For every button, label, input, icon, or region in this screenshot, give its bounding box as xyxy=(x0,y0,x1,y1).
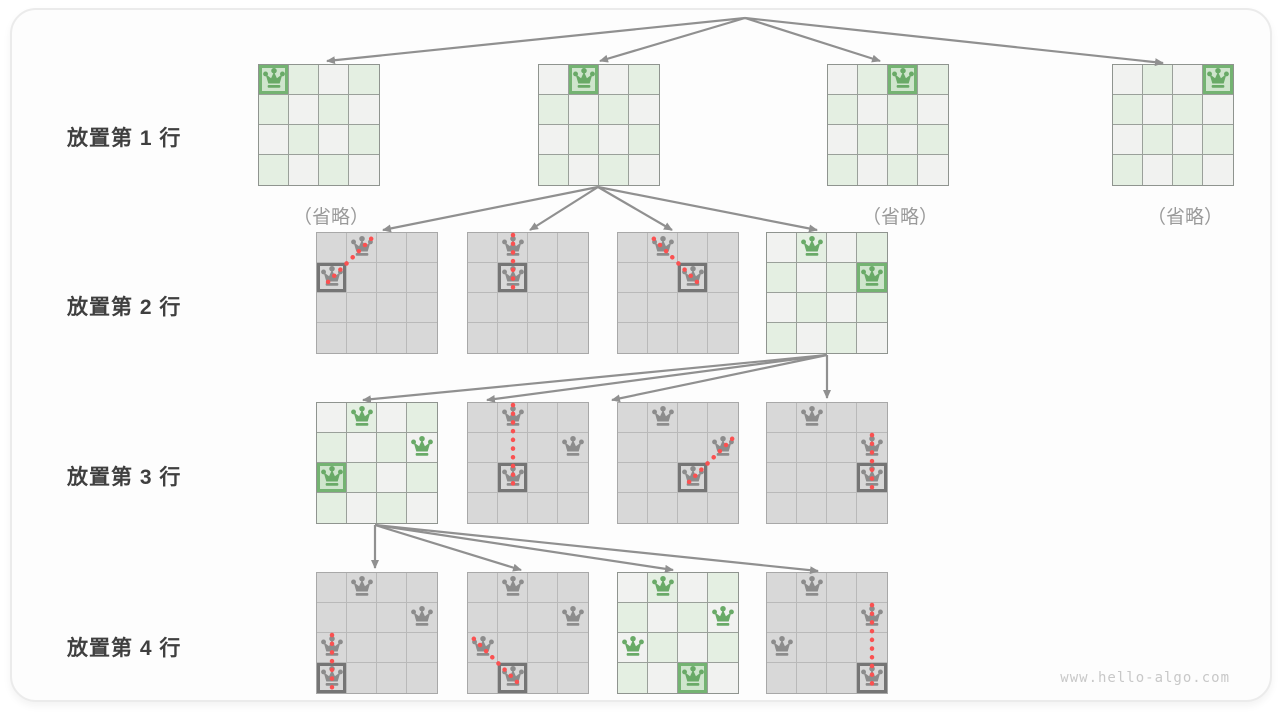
board-cell xyxy=(1203,95,1233,125)
board-cell xyxy=(347,293,377,323)
board-cell xyxy=(827,493,857,523)
board-cell xyxy=(259,155,289,185)
board-cell xyxy=(678,293,708,323)
board-cell xyxy=(528,403,558,433)
board-cell xyxy=(797,463,827,493)
board-cell xyxy=(678,633,708,663)
board-cell xyxy=(289,65,319,95)
board-cell xyxy=(648,493,678,523)
queen-icon xyxy=(349,234,375,260)
board-cell xyxy=(558,493,588,523)
queen-icon xyxy=(560,434,586,460)
board-cell xyxy=(1173,65,1203,95)
board-cell xyxy=(618,663,648,693)
board-cell xyxy=(1143,155,1173,185)
board-cell xyxy=(498,573,528,603)
board-cell xyxy=(1173,125,1203,155)
board-cell xyxy=(569,95,599,125)
board-cell xyxy=(1113,95,1143,125)
board-cell xyxy=(827,323,857,353)
board-cell xyxy=(827,233,857,263)
board-cell xyxy=(319,155,349,185)
board-cell xyxy=(468,323,498,353)
queen-icon xyxy=(710,604,736,630)
board-row3-option3 xyxy=(617,402,739,524)
board-cell xyxy=(797,573,827,603)
board-cell xyxy=(498,433,528,463)
board-cell xyxy=(599,125,629,155)
board-cell xyxy=(797,663,827,693)
board-cell xyxy=(347,493,377,523)
board-cell xyxy=(599,65,629,95)
board-cell xyxy=(407,633,437,663)
board-cell xyxy=(648,633,678,663)
board-cell xyxy=(648,603,678,633)
board-cell xyxy=(618,293,648,323)
board-cell xyxy=(857,293,887,323)
board-cell xyxy=(828,125,858,155)
board-cell xyxy=(528,663,558,693)
board-cell xyxy=(558,263,588,293)
board-cell xyxy=(918,125,948,155)
board-cell xyxy=(678,323,708,353)
board-cell xyxy=(539,125,569,155)
queen-icon xyxy=(859,264,885,290)
board-cell xyxy=(618,433,648,463)
board-cell xyxy=(407,293,437,323)
board-cell xyxy=(797,493,827,523)
board-cell xyxy=(528,573,558,603)
board-cell xyxy=(1113,125,1143,155)
queen-icon xyxy=(500,664,526,690)
board-cell xyxy=(558,233,588,263)
board-cell xyxy=(468,403,498,433)
board-cell xyxy=(708,663,738,693)
board-cell xyxy=(289,125,319,155)
board-cell xyxy=(797,293,827,323)
board-cell xyxy=(618,233,648,263)
queen-icon xyxy=(859,434,885,460)
board-cell xyxy=(528,463,558,493)
board-cell xyxy=(528,323,558,353)
board-cell xyxy=(797,233,827,263)
board-cell xyxy=(377,493,407,523)
board-cell xyxy=(317,323,347,353)
board-cell xyxy=(767,663,797,693)
board-row4-option2 xyxy=(467,572,589,694)
board-cell xyxy=(767,263,797,293)
board-cell xyxy=(767,403,797,433)
board-cell xyxy=(827,603,857,633)
board-cell xyxy=(539,65,569,95)
queen-icon xyxy=(680,264,706,290)
board-cell xyxy=(558,433,588,463)
queen-icon xyxy=(500,264,526,290)
board-cell xyxy=(708,433,738,463)
board-cell xyxy=(599,155,629,185)
board-cell xyxy=(629,155,659,185)
board-cell xyxy=(528,633,558,663)
board-cell xyxy=(767,463,797,493)
board-cell xyxy=(708,603,738,633)
board-cell xyxy=(498,293,528,323)
board-cell xyxy=(797,263,827,293)
board-cell xyxy=(857,663,887,693)
queen-icon xyxy=(650,574,676,600)
board-cell xyxy=(827,573,857,603)
board-row4-option4 xyxy=(766,572,888,694)
board-cell xyxy=(498,493,528,523)
board-cell xyxy=(407,573,437,603)
board-cell xyxy=(407,233,437,263)
board-row1-option4 xyxy=(1112,64,1234,186)
queen-icon xyxy=(409,604,435,630)
queen-icon xyxy=(319,464,345,490)
board-cell xyxy=(918,65,948,95)
board-cell xyxy=(797,603,827,633)
queen-icon xyxy=(650,234,676,260)
board-cell xyxy=(618,493,648,523)
board-row4-option3 xyxy=(617,572,739,694)
board-cell xyxy=(558,573,588,603)
board-cell xyxy=(797,403,827,433)
board-cell xyxy=(678,263,708,293)
board-cell xyxy=(468,633,498,663)
board-cell xyxy=(468,493,498,523)
board-cell xyxy=(319,95,349,125)
board-cell xyxy=(539,95,569,125)
queen-icon xyxy=(500,574,526,600)
board-cell xyxy=(528,433,558,463)
board-cell xyxy=(347,433,377,463)
board-cell xyxy=(678,433,708,463)
board-cell xyxy=(347,323,377,353)
board-cell xyxy=(767,293,797,323)
board-cell xyxy=(648,663,678,693)
queen-icon xyxy=(470,634,496,660)
queen-icon xyxy=(261,66,287,92)
board-cell xyxy=(407,263,437,293)
board-cell xyxy=(347,633,377,663)
board-cell xyxy=(618,403,648,433)
queen-icon xyxy=(500,404,526,430)
board-cell xyxy=(569,125,599,155)
queen-icon xyxy=(620,634,646,660)
board-cell xyxy=(349,125,379,155)
board-cell xyxy=(629,95,659,125)
board-cell xyxy=(289,155,319,185)
board-cell xyxy=(648,233,678,263)
board-cell xyxy=(498,323,528,353)
board-cell xyxy=(377,403,407,433)
board-cell xyxy=(259,125,289,155)
board-cell xyxy=(708,633,738,663)
queen-icon xyxy=(1205,66,1231,92)
board-cell xyxy=(377,263,407,293)
board-cell xyxy=(648,263,678,293)
board-cell xyxy=(828,155,858,185)
board-cell xyxy=(858,155,888,185)
queen-icon xyxy=(859,664,885,690)
board-cell xyxy=(347,463,377,493)
board-cell xyxy=(498,233,528,263)
board-cell xyxy=(767,603,797,633)
queen-icon xyxy=(799,574,825,600)
board-cell xyxy=(528,493,558,523)
board-row2-option2 xyxy=(467,232,589,354)
board-cell xyxy=(319,65,349,95)
board-cell xyxy=(407,493,437,523)
board-cell xyxy=(407,433,437,463)
board-cell xyxy=(828,95,858,125)
board-cell xyxy=(648,293,678,323)
board-cell xyxy=(708,263,738,293)
queen-icon xyxy=(560,604,586,630)
board-cell xyxy=(498,263,528,293)
board-cell xyxy=(858,65,888,95)
board-cell xyxy=(827,403,857,433)
queen-icon xyxy=(859,604,885,630)
board-cell xyxy=(558,463,588,493)
board-row2-option1 xyxy=(316,232,438,354)
board-cell xyxy=(767,433,797,463)
board-cell xyxy=(857,573,887,603)
board-cell xyxy=(708,233,738,263)
board-cell xyxy=(708,293,738,323)
board-cell xyxy=(498,603,528,633)
board-cell xyxy=(767,233,797,263)
board-cell xyxy=(558,663,588,693)
board-cell xyxy=(827,663,857,693)
queen-icon xyxy=(680,464,706,490)
board-cell xyxy=(1143,95,1173,125)
queen-icon xyxy=(319,634,345,660)
board-cell xyxy=(468,293,498,323)
board-cell xyxy=(618,463,648,493)
board-cell xyxy=(377,323,407,353)
boards-layer xyxy=(0,0,1280,720)
board-cell xyxy=(317,233,347,263)
board-cell xyxy=(317,293,347,323)
board-cell xyxy=(317,633,347,663)
board-cell xyxy=(558,633,588,663)
board-cell xyxy=(569,65,599,95)
board-cell xyxy=(498,463,528,493)
queen-icon xyxy=(859,464,885,490)
board-cell xyxy=(857,323,887,353)
board-cell xyxy=(827,293,857,323)
board-cell xyxy=(407,403,437,433)
board-cell xyxy=(377,433,407,463)
board-cell xyxy=(678,463,708,493)
board-cell xyxy=(918,155,948,185)
queen-icon xyxy=(710,434,736,460)
board-cell xyxy=(1173,155,1203,185)
board-cell xyxy=(498,633,528,663)
board-cell xyxy=(377,293,407,323)
board-cell xyxy=(317,463,347,493)
board-cell xyxy=(1143,125,1173,155)
board-cell xyxy=(1113,155,1143,185)
board-cell xyxy=(708,573,738,603)
board-cell xyxy=(468,263,498,293)
board-cell xyxy=(629,125,659,155)
board-cell xyxy=(918,95,948,125)
board-cell xyxy=(678,493,708,523)
queen-icon xyxy=(500,464,526,490)
board-row3-option1 xyxy=(316,402,438,524)
board-cell xyxy=(857,463,887,493)
board-cell xyxy=(648,463,678,493)
queen-icon xyxy=(769,634,795,660)
board-cell xyxy=(857,493,887,523)
board-cell xyxy=(349,155,379,185)
board-row3-option4 xyxy=(766,402,888,524)
board-cell xyxy=(1203,155,1233,185)
board-cell xyxy=(468,233,498,263)
board-cell xyxy=(407,463,437,493)
board-cell xyxy=(1113,65,1143,95)
board-cell xyxy=(599,95,629,125)
board-cell xyxy=(259,65,289,95)
board-cell xyxy=(888,95,918,125)
board-row1-option1 xyxy=(258,64,380,186)
board-cell xyxy=(797,633,827,663)
board-cell xyxy=(678,603,708,633)
queen-icon xyxy=(319,264,345,290)
board-row2-option3 xyxy=(617,232,739,354)
board-cell xyxy=(377,663,407,693)
board-cell xyxy=(407,323,437,353)
board-cell xyxy=(857,433,887,463)
board-cell xyxy=(678,403,708,433)
board-cell xyxy=(528,293,558,323)
board-cell xyxy=(648,433,678,463)
board-cell xyxy=(678,233,708,263)
board-cell xyxy=(347,573,377,603)
board-cell xyxy=(648,573,678,603)
board-cell xyxy=(888,125,918,155)
board-cell xyxy=(857,263,887,293)
board-cell xyxy=(797,323,827,353)
board-cell xyxy=(618,633,648,663)
queen-icon xyxy=(799,404,825,430)
board-cell xyxy=(377,233,407,263)
board-cell xyxy=(618,573,648,603)
queen-icon xyxy=(571,66,597,92)
board-row2-option4 xyxy=(766,232,888,354)
queen-icon xyxy=(799,234,825,260)
board-cell xyxy=(708,323,738,353)
board-cell xyxy=(317,573,347,603)
queen-icon xyxy=(680,664,706,690)
board-cell xyxy=(407,603,437,633)
board-cell xyxy=(708,463,738,493)
board-cell xyxy=(857,633,887,663)
queen-icon xyxy=(409,434,435,460)
board-cell xyxy=(827,463,857,493)
board-row4-option1 xyxy=(316,572,438,694)
board-cell xyxy=(888,155,918,185)
board-cell xyxy=(377,633,407,663)
queen-icon xyxy=(349,404,375,430)
board-cell xyxy=(558,293,588,323)
board-cell xyxy=(347,263,377,293)
board-cell xyxy=(1143,65,1173,95)
board-cell xyxy=(349,95,379,125)
board-cell xyxy=(377,573,407,603)
board-cell xyxy=(528,263,558,293)
queen-icon xyxy=(319,664,345,690)
board-cell xyxy=(827,263,857,293)
board-cell xyxy=(347,403,377,433)
board-cell xyxy=(708,493,738,523)
board-cell xyxy=(648,323,678,353)
board-cell xyxy=(767,633,797,663)
board-cell xyxy=(377,463,407,493)
board-cell xyxy=(317,603,347,633)
board-cell xyxy=(259,95,289,125)
board-cell xyxy=(858,95,888,125)
board-cell xyxy=(708,403,738,433)
queen-icon xyxy=(349,574,375,600)
board-cell xyxy=(618,263,648,293)
board-cell xyxy=(377,603,407,633)
board-cell xyxy=(317,493,347,523)
board-row3-option2 xyxy=(467,402,589,524)
board-cell xyxy=(618,323,648,353)
board-cell xyxy=(648,403,678,433)
board-cell xyxy=(468,573,498,603)
board-cell xyxy=(528,233,558,263)
queen-icon xyxy=(500,234,526,260)
board-cell xyxy=(888,65,918,95)
board-cell xyxy=(289,95,319,125)
board-cell xyxy=(349,65,379,95)
board-cell xyxy=(857,233,887,263)
board-cell xyxy=(468,463,498,493)
queen-icon xyxy=(890,66,916,92)
board-cell xyxy=(569,155,599,185)
board-cell xyxy=(558,323,588,353)
board-cell xyxy=(1203,125,1233,155)
board-cell xyxy=(857,403,887,433)
board-row1-option3 xyxy=(827,64,949,186)
board-cell xyxy=(317,263,347,293)
board-cell xyxy=(468,433,498,463)
board-cell xyxy=(827,633,857,663)
board-cell xyxy=(498,663,528,693)
board-cell xyxy=(347,663,377,693)
board-cell xyxy=(317,403,347,433)
board-cell xyxy=(857,603,887,633)
board-cell xyxy=(498,403,528,433)
board-cell xyxy=(528,603,558,633)
board-cell xyxy=(317,663,347,693)
board-cell xyxy=(767,493,797,523)
board-cell xyxy=(539,155,569,185)
board-cell xyxy=(468,663,498,693)
board-cell xyxy=(347,233,377,263)
board-cell xyxy=(319,125,349,155)
board-cell xyxy=(317,433,347,463)
board-cell xyxy=(468,603,498,633)
board-cell xyxy=(828,65,858,95)
board-row1-option2 xyxy=(538,64,660,186)
board-cell xyxy=(1203,65,1233,95)
board-cell xyxy=(767,323,797,353)
board-cell xyxy=(558,403,588,433)
